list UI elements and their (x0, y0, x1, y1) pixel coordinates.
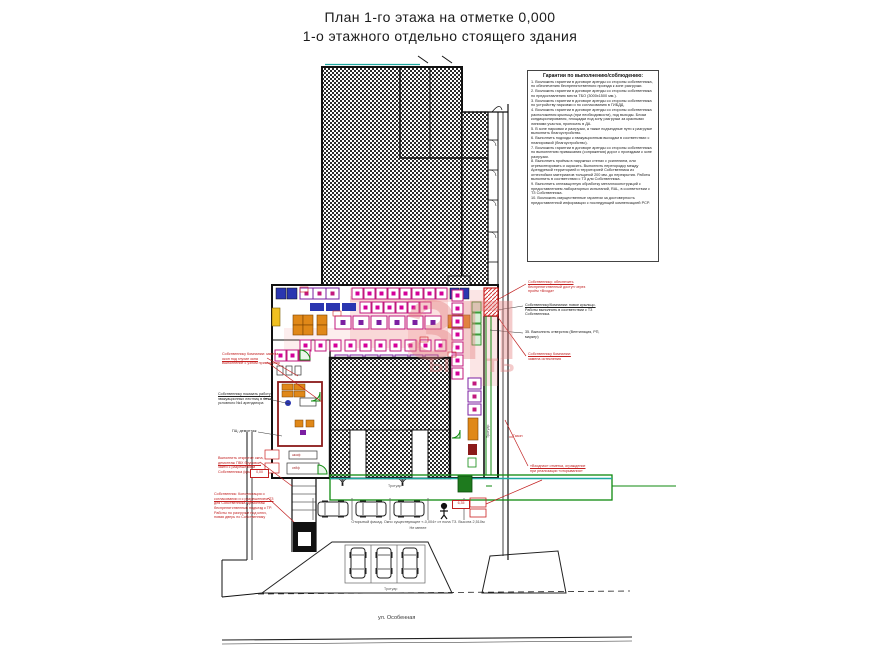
watermark-fragment-1: ы (428, 350, 450, 376)
facade-door-swings (335, 478, 470, 486)
title-line-2: 1-о этажного отдельно стоящего здания (175, 27, 705, 46)
watermark-fragment-2: ть (486, 350, 515, 376)
note-item: 1. Возложить гарантии в договоре аренды … (531, 80, 655, 89)
notes-title: Гарантии по выполнению/соблюдению: (531, 73, 655, 79)
annotation-right-4: Собственнику Компании: замена остекления (528, 352, 571, 361)
note-item: 4. Возложить гарантии в договоре аренды … (531, 108, 655, 126)
cabinet-label-2: сейф (292, 466, 300, 470)
annotation-right-6: «Входная» отметка, ограждение при реализ… (530, 464, 585, 473)
facade-caption-1: Открытый фасад. Окно существующее «-0,00… (318, 520, 518, 524)
annotation-right-1: Собственнику: обеспечить беспрепятственн… (528, 280, 585, 294)
note-item: 3. Возложить гарантии в договоре аренды … (531, 99, 655, 108)
annotation-right-2: Собственнику/Компании: новое крыльцо. Ра… (525, 303, 596, 317)
note-item: 9. Выполнить огнезащитную обработку мета… (531, 182, 655, 195)
sheet-title: План 1-го этажа на отметке 0,000 1-о эта… (175, 8, 705, 46)
annotation-gazon: Газон (513, 434, 523, 439)
facade-caption-2: Не менее (318, 526, 518, 530)
truck-symbol (293, 522, 316, 552)
note-item: 7. Возложить гарантии в договоре аренды … (531, 146, 655, 159)
right-island (482, 551, 566, 593)
trotuar-island-label: Тротуар (384, 587, 397, 591)
annotation-left-3: ГЩ: демонтаж (232, 429, 257, 434)
annotation-right-3: 35. Выполнить отверстия (Вентиляция, РП,… (525, 330, 599, 339)
title-line-1: План 1-го этажа на отметке 0,000 (175, 8, 705, 27)
floor-plan-sheet: ЗП ы ть План 1-го этажа на отметке 0,000… (0, 0, 870, 652)
guarantees-notes-box: Гарантии по выполнению/соблюдению: 1. Во… (527, 70, 659, 262)
cabinet-label-1: шкаф (292, 453, 300, 457)
trotuar-side-label: Тротуар (486, 425, 490, 438)
note-item: 2. Возложить гарантии в договоре аренды … (531, 89, 655, 98)
street-label: ул. Особенная (378, 615, 415, 621)
dim-box-1: 0,00 (250, 469, 269, 478)
parking-near (313, 498, 464, 520)
note-item: 8. Выполнить проёмы в наружных стенах с … (531, 159, 655, 181)
annotation-left-1: Собственнику Компании: замена окон под г… (222, 352, 280, 366)
note-item: 6. Выполнить подходы к эвакуационным вых… (531, 136, 655, 145)
trotuar-strip-label: Тротуар (388, 484, 401, 488)
note-item: 10. Возложить имущественные гарантии за … (531, 196, 655, 205)
person-icon (440, 504, 448, 520)
parking-island (262, 542, 452, 593)
road (222, 591, 632, 644)
annotation-left-5: Собственник: Консультация о согласовании… (214, 492, 273, 520)
upper-building-hatch (322, 56, 508, 285)
note-item: 5. В зоне парковки и разгрузки, а также … (531, 127, 655, 136)
annotation-left-2: Собственнику показать работу эвакуационн… (218, 392, 273, 406)
right-corridor (488, 140, 498, 262)
dim-box-2: 6,35 (452, 500, 470, 509)
